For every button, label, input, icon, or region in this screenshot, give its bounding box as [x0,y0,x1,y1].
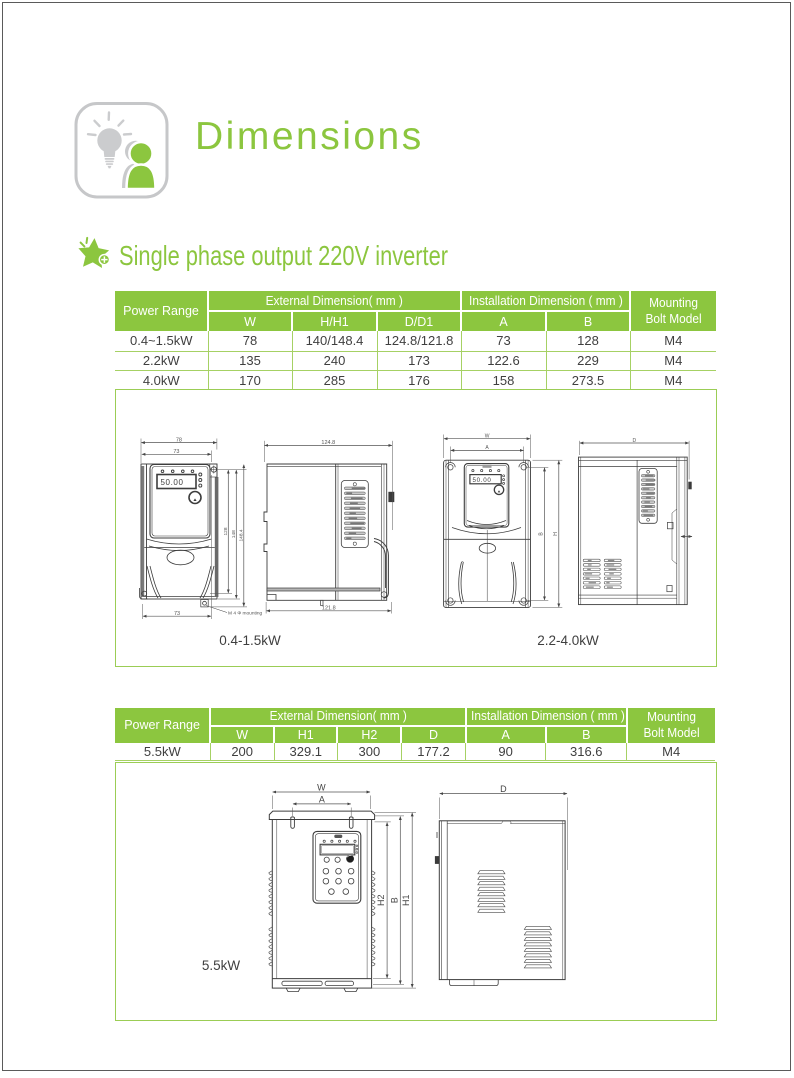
svg-text:148.4: 148.4 [238,529,244,541]
svg-text:0.4-1.5kW: 0.4-1.5kW [219,633,281,648]
svg-text:73: 73 [173,449,179,455]
svg-text:124.8: 124.8 [321,440,335,446]
svg-text:B: B [389,897,399,903]
svg-text:H: H [553,532,559,536]
svg-text:128: 128 [223,527,229,535]
svg-text:D: D [500,784,507,794]
svg-text:148: 148 [231,530,237,538]
svg-text:B: B [539,532,545,536]
svg-text:M 4 Φ mounting: M 4 Φ mounting [228,611,263,617]
svg-text:W: W [485,434,490,440]
svg-text:50.00: 50.00 [161,478,184,487]
svg-text:W: W [317,783,326,793]
svg-text:A: A [319,794,325,804]
svg-text:D: D [632,438,636,444]
svg-text:H2: H2 [376,894,386,906]
svg-text:78: 78 [176,437,182,443]
svg-text:5.5kW: 5.5kW [202,958,241,973]
svg-text:73: 73 [174,611,180,617]
svg-text:H1: H1 [401,894,411,906]
svg-text:121.8: 121.8 [322,606,336,612]
svg-text:2.2-4.0kW: 2.2-4.0kW [537,633,599,648]
svg-text:50.00: 50.00 [473,477,492,484]
